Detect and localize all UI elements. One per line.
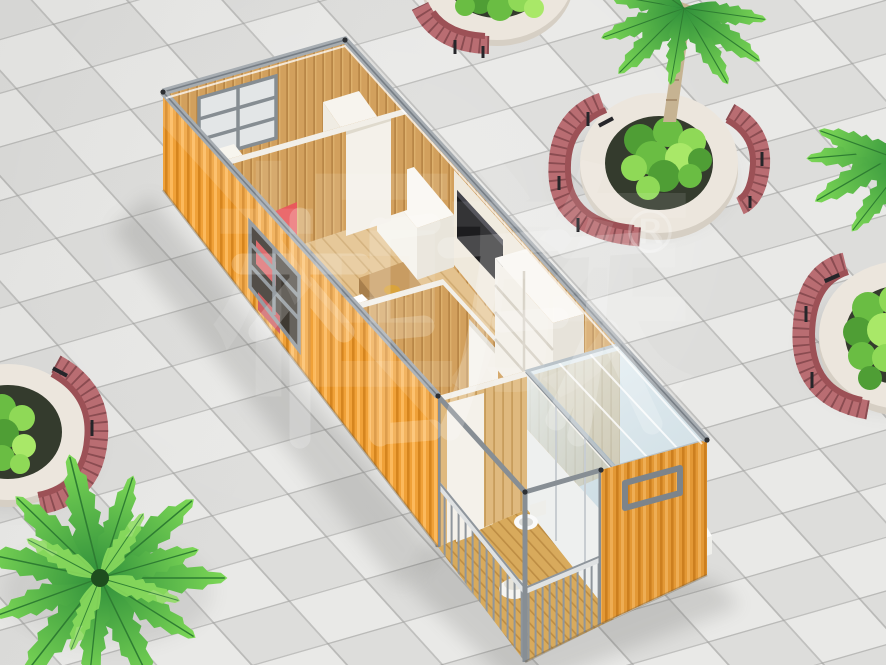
palm-fronds-right-edge bbox=[805, 119, 886, 239]
palm-crown-center bbox=[91, 569, 109, 587]
planter-right-edge bbox=[802, 261, 886, 416]
palm-crown bbox=[597, 0, 768, 90]
planter-top-right bbox=[558, 93, 762, 240]
white-door bbox=[346, 115, 391, 236]
plaza-scene: 柜族 ® bbox=[0, 0, 886, 665]
scene-render bbox=[0, 0, 886, 665]
planter-top-center bbox=[420, 0, 574, 58]
